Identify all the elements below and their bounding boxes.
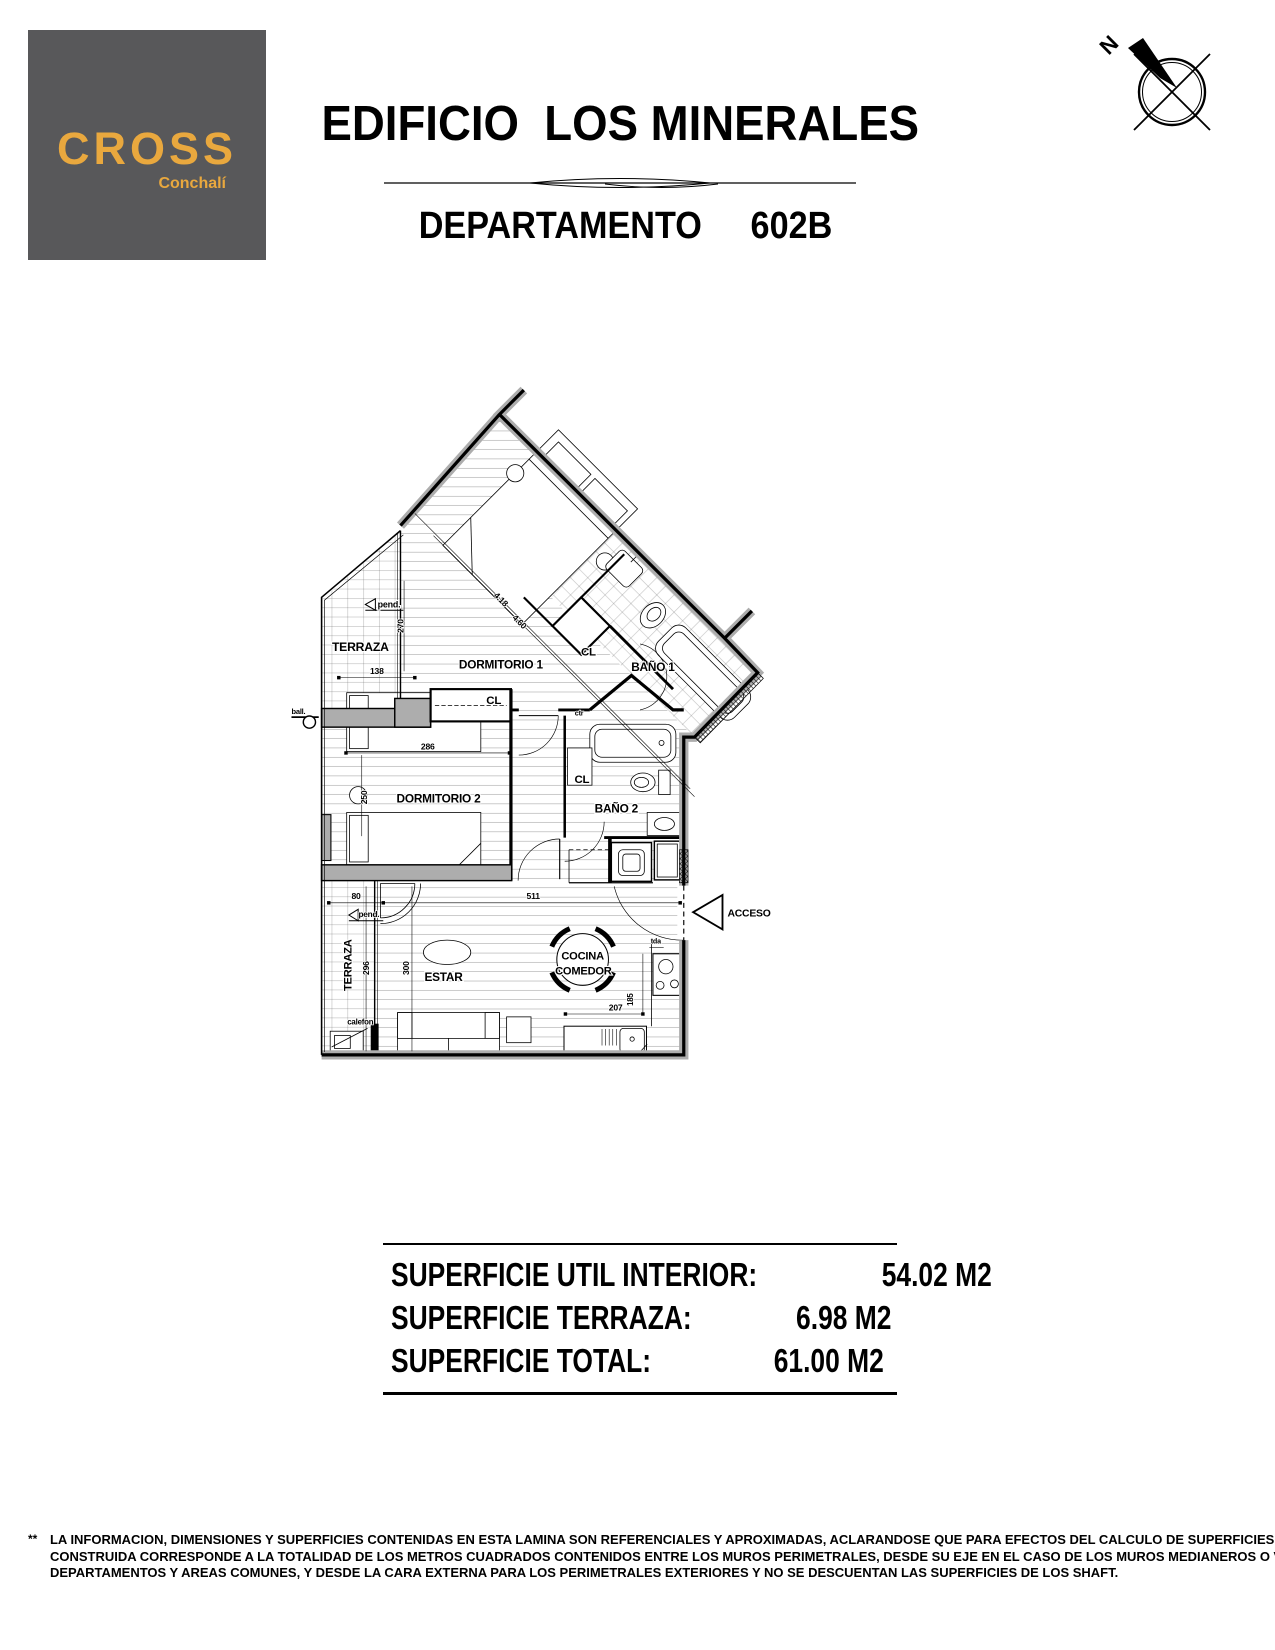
- dim-185: 185: [626, 993, 635, 1006]
- coffee-table: [423, 940, 470, 964]
- logo-location-text: Conchalí: [28, 175, 266, 193]
- calefon-unit: [330, 1028, 367, 1052]
- bed-dormitorio2-b: [347, 812, 481, 864]
- compass-icon: N: [1094, 31, 1210, 130]
- label-terraza-lower: TERRAZA: [343, 939, 355, 991]
- building-title: EDIFICIO LOS MINERALES: [275, 96, 965, 152]
- label-terraza-upper: TERRAZA: [332, 640, 389, 654]
- label-dormitorio1: DORMITORIO 1: [459, 657, 544, 671]
- cooktop: [653, 954, 682, 996]
- title-divider: [380, 174, 860, 192]
- surface-summary-table: SUPERFICIE UTIL INTERIOR: 54.02 M2 SUPER…: [383, 1243, 897, 1395]
- table-row: SUPERFICIE TERRAZA: 6.98 M2: [383, 1296, 897, 1339]
- dim-511: 511: [527, 891, 541, 901]
- label-cl-dorm1: CL: [581, 646, 596, 658]
- summary-value: 61.00 M2: [774, 1342, 897, 1380]
- label-estar: ESTAR: [424, 970, 463, 984]
- label-dormitorio2: DORMITORIO 2: [397, 791, 482, 805]
- label-cl-bano2: CL: [574, 774, 589, 786]
- unit-number-text: 602B: [750, 205, 832, 248]
- dim-300: 300: [401, 961, 411, 975]
- logo-brand-text: CROSS: [28, 126, 266, 171]
- summary-label: SUPERFICIE TERRAZA:: [383, 1299, 692, 1337]
- disclaimer: ** LA INFORMACION, DIMENSIONES Y SUPERFI…: [28, 1532, 1263, 1582]
- ball-marker: [291, 716, 318, 728]
- dim-286: 286: [421, 741, 435, 751]
- vanity-bano2: [647, 812, 681, 835]
- nightstand-lamp: [507, 465, 524, 482]
- table-row: SUPERFICIE UTIL INTERIOR: 54.02 M2: [383, 1253, 897, 1296]
- summary-label: SUPERFICIE UTIL INTERIOR:: [383, 1256, 757, 1294]
- cross-logo: CROSS Conchalí: [28, 30, 266, 260]
- label-cocina: COCINA: [561, 950, 604, 962]
- floorplan-sheet: CROSS Conchalí EDIFICIO LOS MINERALES DE…: [0, 0, 1275, 1650]
- side-table-estar: [507, 1017, 531, 1043]
- label-cl-dorm2: CL: [486, 695, 501, 707]
- summary-value: 54.02 M2: [881, 1256, 1004, 1294]
- label-ctr: ctr: [575, 710, 584, 718]
- dim-270: 270: [395, 619, 405, 633]
- label-comedor: COMEDOR: [555, 966, 612, 978]
- dim-250: 250: [359, 790, 369, 804]
- label-pend-upper: pend.: [378, 599, 401, 609]
- acceso-arrow-icon: [693, 895, 722, 929]
- bathtub-bano2: [590, 724, 676, 762]
- dim-296: 296: [361, 961, 371, 975]
- building-title-text: EDIFICIO LOS MINERALES: [321, 96, 919, 152]
- label-bano1: BAÑO 1: [631, 660, 675, 674]
- north-compass: N: [1080, 22, 1250, 167]
- compass-north-label: N: [1094, 31, 1123, 60]
- dim-80: 80: [351, 891, 361, 901]
- unit-title: DEPARTAMENTO602B: [275, 205, 965, 248]
- label-bano2: BAÑO 2: [595, 801, 639, 815]
- disclaimer-marker: **: [28, 1532, 37, 1546]
- label-acceso: ACCESO: [728, 908, 771, 919]
- summary-label: SUPERFICIE TOTAL:: [383, 1342, 651, 1380]
- sofa: [398, 1013, 500, 1055]
- summary-value: 6.98 M2: [796, 1299, 904, 1337]
- disclaimer-line: DEPARTAMENTOS Y AREAS COMUNES, Y DESDE L…: [50, 1565, 1245, 1582]
- disclaimer-line: LA INFORMACION, DIMENSIONES Y SUPERFICIE…: [50, 1532, 1245, 1549]
- label-ball: ball.: [291, 707, 305, 716]
- fridge: [654, 841, 680, 880]
- table-row: SUPERFICIE TOTAL: 61.00 M2: [383, 1339, 897, 1382]
- floorplan-drawing: TERRAZA pend. 270 138 DORMITORIO 1 4.18 …: [280, 250, 990, 1210]
- dim-207: 207: [609, 1002, 623, 1012]
- dim-138: 138: [370, 666, 384, 676]
- label-tda: tda: [651, 938, 662, 946]
- label-pend-lower: pend.: [358, 910, 379, 919]
- disclaimer-line: CONSTRUIDA CORRESPONDE A LA TOTALIDAD DE…: [50, 1549, 1245, 1566]
- label-calefon: calefon: [347, 1018, 373, 1027]
- unit-label-text: DEPARTAMENTO: [419, 205, 702, 248]
